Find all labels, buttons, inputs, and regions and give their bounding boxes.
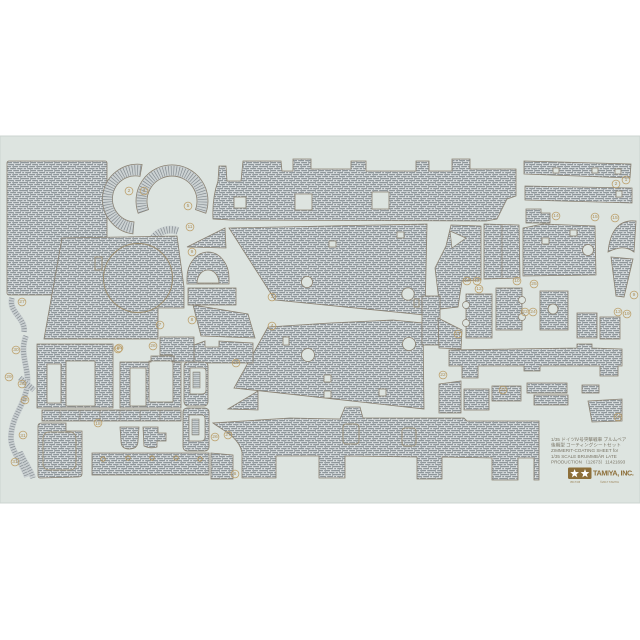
svg-text:1: 1 [625,177,628,183]
svg-text:5: 5 [187,203,190,209]
svg-text:3: 3 [143,188,146,194]
svg-text:35173★: 35173★ [570,480,581,484]
svg-text:©2017 TAMIYA: ©2017 TAMIYA [600,480,619,484]
svg-text:27: 27 [225,432,231,438]
svg-text:21: 21 [500,387,506,393]
svg-text:29: 29 [6,374,12,380]
svg-text:2: 2 [128,188,131,194]
svg-text:30: 30 [13,347,19,353]
svg-text:4: 4 [271,323,274,329]
svg-text:24: 24 [530,309,536,315]
svg-text:31: 31 [20,433,26,439]
svg-text:11: 11 [187,224,192,230]
svg-text:12: 12 [474,278,480,284]
svg-text:28: 28 [19,381,25,387]
svg-text:13: 13 [464,278,470,284]
svg-text:23: 23 [522,309,528,315]
svg-text:26: 26 [212,434,218,440]
svg-text:22: 22 [440,372,446,378]
svg-text:28: 28 [22,397,28,403]
svg-text:31: 31 [12,459,18,465]
svg-text:10: 10 [514,278,520,284]
svg-text:20: 20 [233,360,239,366]
svg-text:2: 2 [615,181,618,187]
svg-text:ZIMMERIT-COATING SHEET for: ZIMMERIT-COATING SHEET for [551,448,619,453]
svg-text:8: 8 [191,317,194,323]
svg-text:15: 15 [592,214,598,220]
svg-text:12: 12 [476,286,482,292]
svg-text:25: 25 [531,281,537,287]
svg-text:9: 9 [191,249,194,255]
svg-text:1/35 SCALE BRUMMBÄR LATE: 1/35 SCALE BRUMMBÄR LATE [551,453,617,459]
svg-text:TAMIYA, INC.: TAMIYA, INC. [593,469,634,478]
svg-text:PRODUCTION （12673）11421693: PRODUCTION （12673）11421693 [551,459,626,464]
svg-text:26: 26 [150,343,156,349]
svg-text:16: 16 [615,414,621,420]
svg-text:8: 8 [117,346,120,352]
svg-text:19: 19 [624,311,630,317]
svg-text:15: 15 [612,215,618,221]
svg-text:6: 6 [234,471,237,477]
svg-text:7: 7 [159,322,162,328]
svg-text:13: 13 [615,309,621,315]
svg-text:18: 18 [95,421,101,427]
svg-text:17: 17 [455,331,461,337]
svg-text:27: 27 [19,299,25,305]
svg-text:14: 14 [553,213,559,219]
svg-text:3: 3 [271,294,274,300]
svg-text:9: 9 [633,292,636,298]
